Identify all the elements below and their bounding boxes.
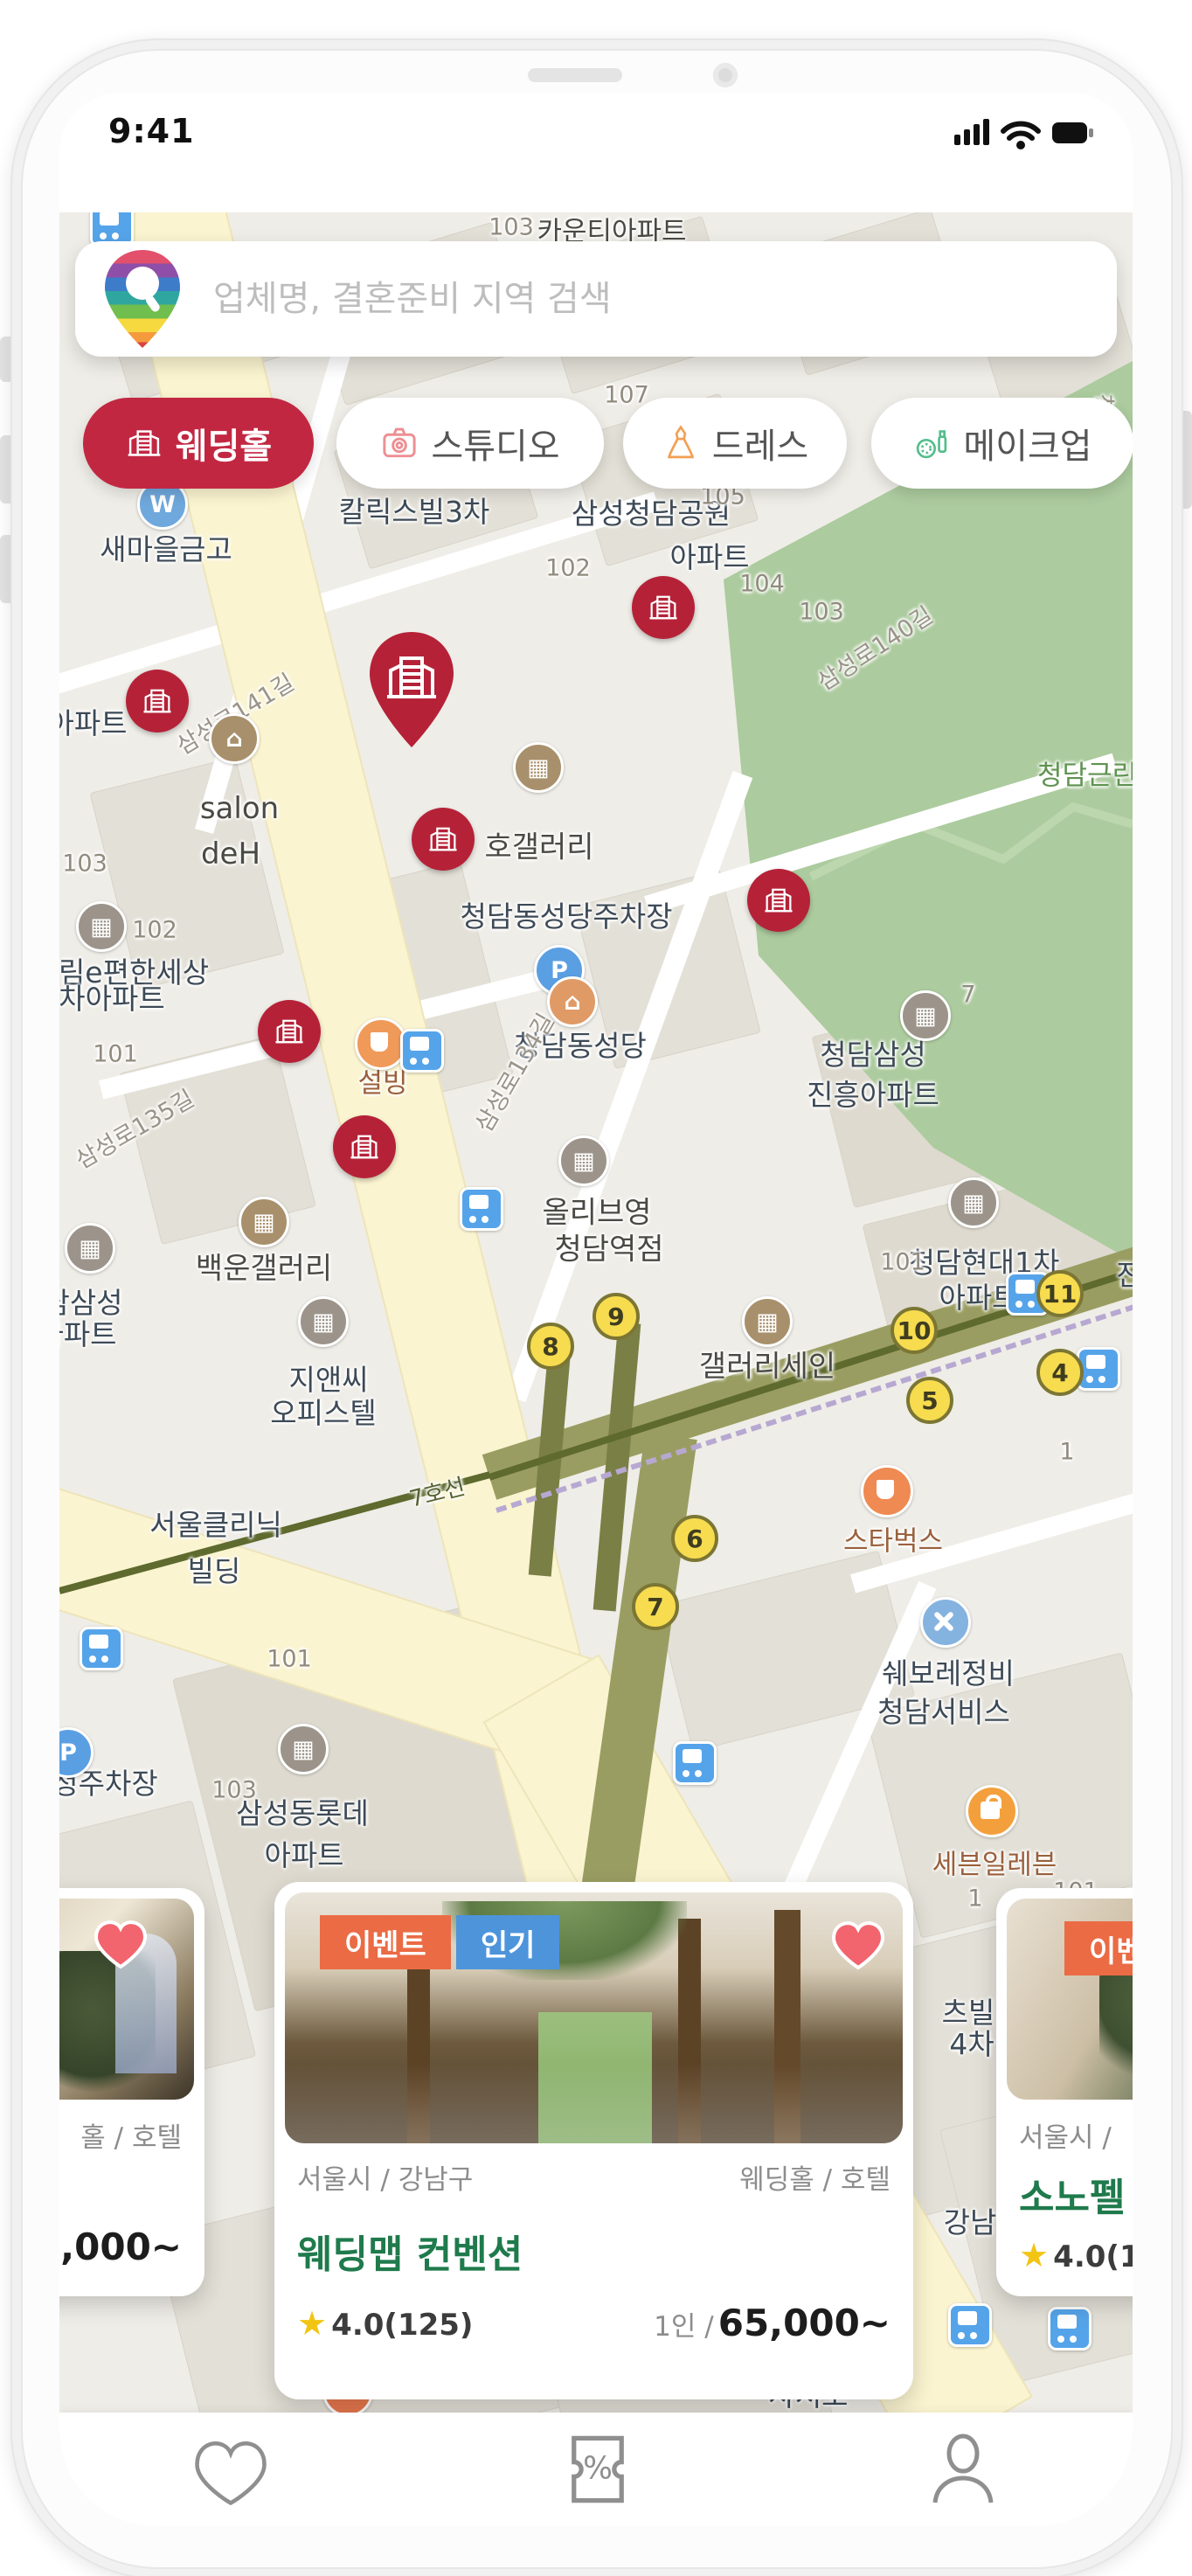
map-label: 청담서비스 [877, 1689, 1010, 1731]
map-label: 새마을금고 [100, 526, 232, 568]
chip-label: 웨딩홀 [176, 418, 272, 469]
map-label: 102 [132, 917, 177, 944]
status-icons [954, 115, 1094, 154]
event-badge: 이벤트 [320, 1915, 451, 1969]
map-label: 아파트 [59, 1311, 117, 1353]
map-poi-icon: ⌂ [547, 976, 598, 1027]
front-camera [713, 63, 738, 87]
map-label: 104 [739, 571, 785, 598]
map-label: 진 [1116, 1252, 1133, 1294]
repair-shop-icon [920, 1597, 971, 1648]
venue-price: ,000~ [60, 2225, 182, 2268]
map-label: salon [200, 791, 279, 826]
map-label: 스타벅스 [843, 1519, 943, 1559]
venue-card-left[interactable]: 홀 / 호텔 ,000~ [59, 1888, 204, 2296]
venue-photo: 이벤트 [1007, 1899, 1133, 2100]
chip-dress[interactable]: 드레스 [623, 398, 847, 489]
map-poi-icon: ⌂ [209, 713, 260, 764]
store-icon [966, 1785, 1018, 1837]
map-label: 7 [960, 982, 975, 1009]
map-label: 아파트 [669, 534, 749, 576]
map-label: 청담동성당주차장 [461, 893, 673, 935]
clock: 9:41 [108, 112, 195, 150]
map-poi-icon: ▦ [298, 1296, 349, 1347]
venue-card-main[interactable]: 이벤트 인기 서울시 / 강남구 웨딩홀 / 호텔 웨딩맵 컨벤션 ★ 4.0(… [274, 1882, 913, 2399]
map-label: 서울클리닉 [149, 1502, 282, 1544]
star-icon: ★ [1019, 2236, 1049, 2274]
map-label: 갤러리세인 [699, 1343, 835, 1385]
map-poi-icon: ▦ [948, 1177, 999, 1228]
venue-rating: 4.0 [331, 2308, 384, 2343]
wedding-map-logo-pin-icon [105, 250, 180, 348]
speaker-grille [528, 68, 622, 82]
map-label: 호갤러리 [484, 823, 593, 866]
chip-label: 스튜디오 [431, 418, 559, 469]
star-icon: ★ [297, 2304, 327, 2343]
venue-location: 서울시 / 강남구 [297, 2157, 473, 2197]
venue-name: 소노펠 [1019, 2166, 1125, 2222]
chip-wedding-hall[interactable]: 웨딩홀 [83, 398, 314, 489]
venue-marker[interactable] [258, 1000, 321, 1063]
map-label: 빌딩 [188, 1548, 241, 1590]
map-label: 차아파트 [59, 976, 165, 1017]
venue-category: 웨딩홀 / 호텔 [739, 2157, 891, 2197]
venue-marker[interactable] [412, 808, 475, 871]
map-label: 103 [489, 214, 534, 241]
map-label: 오피스텔 [270, 1390, 376, 1432]
venue-reviews: (125) [384, 2308, 473, 2343]
favorites-heart-icon[interactable] [191, 2431, 271, 2508]
venue-location: 서울시 / [1019, 2115, 1112, 2155]
venue-marker[interactable] [747, 869, 810, 932]
camera-icon [380, 424, 419, 462]
subway-exit-badge: 5 [906, 1377, 953, 1424]
map-label: 103 [799, 599, 844, 626]
subway-exit-badge: 4 [1036, 1349, 1084, 1396]
map-label: 쉐보레정비 [882, 1650, 1015, 1692]
wifi-icon [1003, 124, 1038, 138]
status-bar: 9:41 [59, 93, 1133, 212]
cafe-icon [861, 1465, 913, 1517]
map-label: 백운갤러리 [196, 1245, 332, 1288]
subway-exit-badge: 7 [632, 1583, 679, 1630]
map-poi-icon: ▦ [900, 990, 951, 1041]
subway-exit-badge: 8 [527, 1323, 574, 1370]
venue-card-right[interactable]: 이벤트 서울시 / 소노펠 ★ 4.0(1 [996, 1888, 1133, 2296]
chip-studio[interactable]: 스튜디오 [336, 398, 604, 489]
map-label: 1 [1059, 1439, 1074, 1466]
popular-badge: 인기 [456, 1915, 560, 1969]
photo-tables [285, 2065, 903, 2143]
map-poi-icon: ▦ [239, 1197, 289, 1247]
favorite-heart-icon[interactable] [830, 1917, 886, 1973]
price-prefix: 1인 / [654, 2311, 714, 2343]
profile-person-icon[interactable] [925, 2431, 1001, 2508]
map-label: 칼릭스빌3차 [339, 489, 490, 531]
filter-chips: 웨딩홀 스튜디오 드레스 [59, 398, 1133, 489]
map-poi-icon: ▦ [558, 1135, 609, 1186]
map-label: 청담역점 [554, 1226, 663, 1268]
map-label: deH [201, 837, 260, 871]
app-screen: 103카운티아파트107106청담대로새마을금고칼릭스빌3차삼성청담공원아파트1… [59, 93, 1133, 2526]
favorite-heart-icon[interactable] [93, 1916, 149, 1972]
bus-stop-icon [400, 1029, 444, 1073]
bottom-nav: % [59, 2413, 1133, 2526]
map-label: 강남 [944, 2199, 997, 2241]
venue-photo: 이벤트 인기 [285, 1892, 903, 2143]
map-label: 아파트 [59, 700, 128, 742]
venue-name: 웨딩맵 컨벤션 [297, 2223, 523, 2279]
dress-icon [662, 424, 700, 462]
venue-rating: 4.0(1 [1053, 2239, 1133, 2274]
map-label: 101 [93, 1041, 138, 1068]
battery-icon [1052, 122, 1093, 143]
cafe-icon [355, 1017, 407, 1070]
search-bar[interactable] [75, 241, 1117, 357]
bus-stop-icon [948, 2303, 992, 2347]
map-label: 진흥아파트 [807, 1072, 939, 1114]
map-label: 102 [545, 555, 591, 582]
map-poi-icon: ▦ [278, 1724, 329, 1774]
map-poi-icon: ▦ [742, 1296, 793, 1347]
venue-category: 홀 / 호텔 [80, 2115, 182, 2155]
map-poi-icon: ▦ [513, 742, 564, 793]
bus-stop-icon [673, 1741, 717, 1785]
map-label: 101 [267, 1646, 312, 1673]
signal-icon [954, 119, 989, 145]
venue-marker[interactable] [632, 576, 695, 639]
map-label: 삼성동롯데 [236, 1790, 369, 1832]
map-label: 103 [62, 851, 107, 878]
map-label: 아파트 [264, 1832, 343, 1874]
map-poi-icon: ▦ [76, 901, 127, 952]
bus-stop-icon [460, 1187, 503, 1231]
map-poi-icon: ▦ [65, 1223, 115, 1274]
coupons-ticket-icon[interactable]: % [560, 2431, 635, 2508]
wedding-hall-icon [125, 424, 163, 462]
selected-venue-pin[interactable] [368, 632, 455, 751]
map-label: 1 [967, 1885, 982, 1913]
venue-marker[interactable] [126, 670, 189, 733]
chip-label: 메이크업 [963, 418, 1092, 469]
bus-stop-icon [1048, 2307, 1092, 2350]
event-badge: 이벤트 [1064, 1921, 1133, 1975]
subway-exit-badge: 6 [671, 1515, 718, 1562]
subway-exit-badge: 9 [593, 1293, 640, 1340]
map-label: 101 [880, 1249, 925, 1276]
map-label: 4차 [949, 2021, 994, 2063]
map-poi-icon: P [59, 1727, 94, 1778]
map-label: 청담근린 [1037, 753, 1133, 793]
bus-stop-icon [80, 1627, 123, 1670]
subway-exit-badge: 10 [891, 1307, 938, 1354]
chip-label: 드레스 [712, 418, 808, 469]
app-screenshot: 103카운티아파트107106청담대로새마을금고칼릭스빌3차삼성청담공원아파트1… [0, 0, 1192, 2576]
svg-text:%: % [583, 2450, 613, 2486]
makeup-icon [912, 424, 951, 462]
chip-makeup[interactable]: 메이크업 [871, 398, 1133, 489]
search-input[interactable] [211, 278, 1117, 320]
venue-price: 65,000~ [718, 2302, 891, 2344]
map-label: 세븐일레븐 [932, 1843, 1057, 1882]
subway-exit-badge: 11 [1036, 1270, 1084, 1317]
venue-marker[interactable] [333, 1115, 396, 1178]
